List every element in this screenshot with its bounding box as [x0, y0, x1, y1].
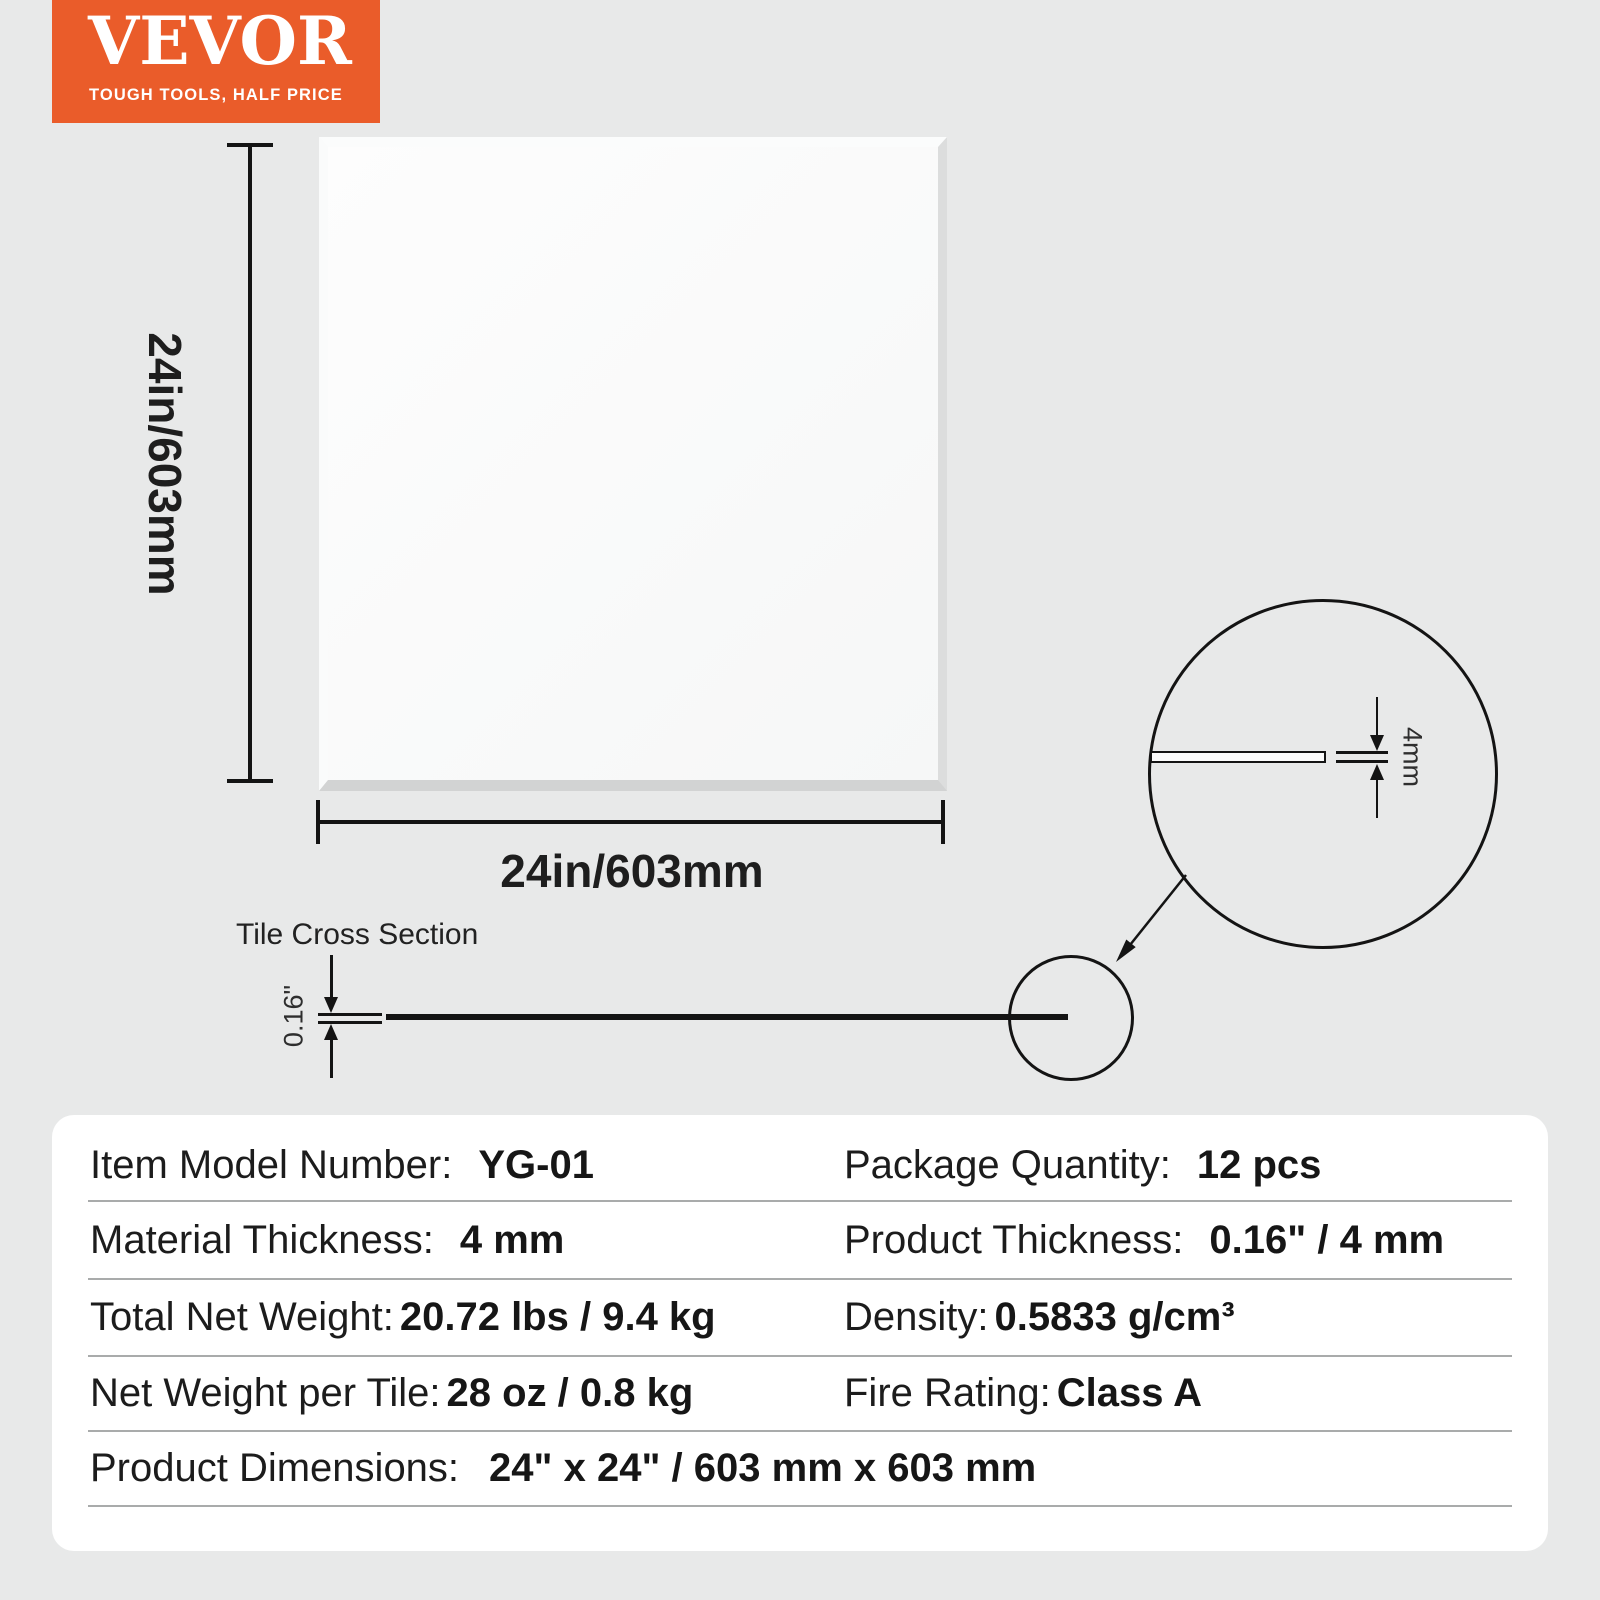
brand-tagline: TOUGH TOOLS, HALF PRICE: [89, 86, 343, 105]
spec-label: Item Model Number:: [90, 1143, 452, 1188]
spec-label: Material Thickness:: [90, 1218, 434, 1263]
width-dim-right-tick: [941, 800, 945, 844]
detail-thickness-label: 4mm: [1397, 727, 1428, 787]
spec-label: Product Dimensions:: [90, 1446, 459, 1491]
spec-cell-package-quantity: Package Quantity: 12 pcs: [844, 1143, 1321, 1188]
brand-wordmark: VEVOR: [88, 8, 352, 74]
thickness-dim-down-arrow-icon: [324, 997, 338, 1013]
detail-adjacent-tile-bottom-line: [1336, 760, 1388, 763]
spec-cell-material-thickness: Material Thickness: 4 mm: [90, 1218, 564, 1263]
spec-label: Product Thickness:: [844, 1218, 1183, 1263]
thickness-dim-label: 0.16": [279, 985, 310, 1047]
spec-row-tile-weight-fire: Net Weight per Tile: 28 oz / 0.8 kg Fire…: [52, 1355, 1548, 1430]
spec-cell-density: Density: 0.5833 g/cm³: [844, 1295, 1235, 1340]
spec-value: 20.72 lbs / 9.4 kg: [400, 1295, 716, 1340]
spec-value: 0.16" / 4 mm: [1209, 1218, 1444, 1263]
spec-row-dimensions: Product Dimensions: 24" x 24" / 603 mm x…: [52, 1430, 1548, 1505]
height-dim-line: [248, 145, 252, 783]
spec-cell-total-net-weight: Total Net Weight: 20.72 lbs / 9.4 kg: [90, 1295, 716, 1340]
spec-row-thickness: Material Thickness: 4 mm Product Thickne…: [52, 1200, 1548, 1278]
detail-dim-down-arrow-icon: [1370, 735, 1384, 751]
spec-value: 0.5833 g/cm³: [995, 1295, 1235, 1340]
spec-value: 4 mm: [460, 1218, 565, 1263]
spec-value: YG-01: [478, 1143, 594, 1188]
thickness-dim-up-arrow-icon: [324, 1024, 338, 1040]
spec-row-weight-density: Total Net Weight: 20.72 lbs / 9.4 kg Den…: [52, 1278, 1548, 1355]
spec-cell-product-dimensions: Product Dimensions: 24" x 24" / 603 mm x…: [90, 1446, 1036, 1491]
tile-front-view: [319, 137, 947, 791]
vevor-logo: VEVOR TOUGH TOOLS, HALF PRICE: [52, 0, 380, 123]
cross-section-title: Tile Cross Section: [236, 918, 478, 952]
spec-value: 12 pcs: [1197, 1143, 1322, 1188]
spec-value: 28 oz / 0.8 kg: [447, 1371, 694, 1416]
spec-label: Net Weight per Tile:: [90, 1371, 441, 1416]
detail-tile-edge: [1150, 751, 1326, 763]
cross-section-top-surface-line: [318, 1013, 382, 1016]
spec-label: Total Net Weight:: [90, 1295, 394, 1340]
spec-cell-net-weight-per-tile: Net Weight per Tile: 28 oz / 0.8 kg: [90, 1371, 693, 1416]
spec-label: Density:: [844, 1295, 989, 1340]
height-dim-bottom-tick: [227, 779, 273, 783]
product-spec-infographic: VEVOR TOUGH TOOLS, HALF PRICE 24in/603mm…: [0, 0, 1600, 1600]
spec-cell-product-thickness: Product Thickness: 0.16" / 4 mm: [844, 1218, 1444, 1263]
thickness-dim-upper-line: [330, 955, 333, 1003]
cross-section-tile-line: [386, 1014, 1068, 1020]
width-dim-label: 24in/603mm: [500, 844, 763, 898]
detail-dim-upper-line: [1376, 697, 1378, 739]
spec-cell-fire-rating: Fire Rating: Class A: [844, 1371, 1202, 1416]
width-dim-line: [318, 820, 945, 824]
spec-table: Item Model Number: YG-01 Package Quantit…: [52, 1115, 1548, 1551]
detail-zoom-circle: [1148, 599, 1498, 949]
spec-value: Class A: [1057, 1371, 1202, 1416]
spec-cell-item-model: Item Model Number: YG-01: [90, 1143, 594, 1188]
height-dim-label: 24in/603mm: [138, 332, 192, 595]
spec-label: Package Quantity:: [844, 1143, 1171, 1188]
detail-dim-lower-line: [1376, 780, 1378, 818]
spec-row-model-quantity: Item Model Number: YG-01 Package Quantit…: [52, 1115, 1548, 1200]
detail-dim-up-arrow-icon: [1370, 764, 1384, 780]
spec-label: Fire Rating:: [844, 1371, 1051, 1416]
spec-value: 24" x 24" / 603 mm x 603 mm: [489, 1446, 1036, 1491]
detail-adjacent-tile-top-line: [1336, 751, 1388, 754]
thickness-dim-lower-line: [330, 1040, 333, 1078]
row-divider: [88, 1505, 1512, 1507]
detail-connector-arrow-icon: [1090, 855, 1200, 975]
